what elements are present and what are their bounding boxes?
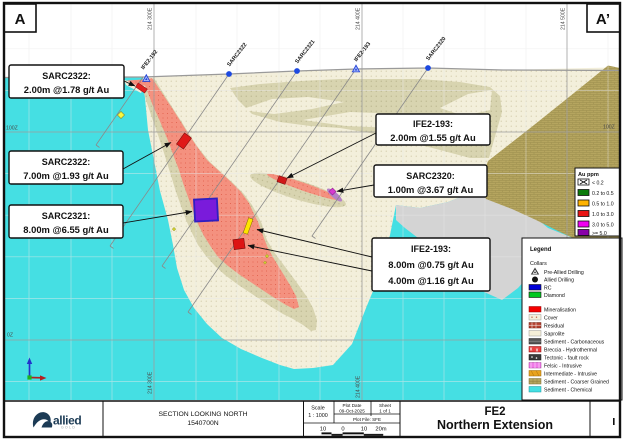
svg-text:FE2: FE2 — [484, 406, 505, 418]
svg-text:3.0 to 5.0: 3.0 to 5.0 — [592, 223, 614, 229]
svg-text:< 0.2: < 0.2 — [592, 181, 604, 187]
svg-text:RC: RC — [544, 285, 552, 291]
svg-text:7.00m @1.93 g/t Au: 7.00m @1.93 g/t Au — [23, 170, 109, 181]
svg-text:Sediment - Chemical: Sediment - Chemical — [544, 387, 592, 393]
svg-text:SECTION LOOKING NORTH: SECTION LOOKING NORTH — [159, 411, 248, 418]
svg-text:100Z: 100Z — [603, 125, 615, 131]
svg-text:SARC2320:: SARC2320: — [406, 171, 455, 181]
svg-text:1 : 1000: 1 : 1000 — [308, 413, 327, 419]
svg-text:2.00m @1.78 g/t Au: 2.00m @1.78 g/t Au — [24, 84, 110, 95]
svg-text:1 of 1: 1 of 1 — [379, 409, 391, 414]
svg-text:100Z: 100Z — [6, 126, 18, 132]
svg-text:10: 10 — [320, 427, 326, 433]
svg-text:IFE2-193:: IFE2-193: — [411, 244, 451, 254]
svg-text:Cover: Cover — [544, 315, 558, 321]
svg-text:A: A — [15, 11, 26, 28]
svg-text:GOLD: GOLD — [61, 425, 76, 429]
svg-text:Scale: Scale — [311, 406, 325, 412]
svg-text:Northern Extension: Northern Extension — [437, 418, 553, 432]
svg-text:214 400E: 214 400E — [356, 375, 362, 398]
svg-text:Au ppm: Au ppm — [578, 172, 599, 178]
svg-text:0.2 to 0.5: 0.2 to 0.5 — [592, 191, 614, 197]
svg-text:Saprolite: Saprolite — [544, 331, 565, 337]
svg-text:214 400E: 214 400E — [356, 7, 362, 30]
svg-text:Breccia - Hydrothermal: Breccia - Hydrothermal — [544, 347, 597, 353]
svg-text:4.00m @1.16 g/t Au: 4.00m @1.16 g/t Au — [388, 275, 474, 286]
svg-text:SARC2322:: SARC2322: — [42, 71, 91, 81]
svg-text:Sediment - Carbonaceous: Sediment - Carbonaceous — [544, 339, 605, 345]
svg-text:20m: 20m — [375, 427, 386, 433]
svg-text:Sediment - Coarser Grained: Sediment - Coarser Grained — [544, 379, 609, 385]
svg-text:Sheet: Sheet — [379, 403, 392, 408]
svg-text:214 500E: 214 500E — [561, 7, 567, 30]
svg-text:SARC2321:: SARC2321: — [42, 211, 91, 221]
svg-text:10: 10 — [361, 427, 367, 433]
svg-text:A’: A’ — [596, 11, 610, 28]
svg-text:Legend: Legend — [530, 247, 552, 253]
svg-text:Residual: Residual — [544, 323, 564, 329]
svg-text:Plot Date: Plot Date — [343, 403, 362, 408]
svg-text:1540700N: 1540700N — [187, 420, 218, 427]
svg-text:8.00m @0.75 g/t Au: 8.00m @0.75 g/t Au — [388, 259, 474, 270]
svg-text:Tectonic - fault rock: Tectonic - fault rock — [544, 355, 589, 361]
svg-text:Mineralisation: Mineralisation — [544, 307, 576, 313]
svg-text:Pre-Allied Drilling: Pre-Allied Drilling — [544, 270, 584, 276]
svg-text:2.00m @1.55 g/t Au: 2.00m @1.55 g/t Au — [390, 132, 476, 143]
svg-text:Intermediate - Intrusive: Intermediate - Intrusive — [544, 371, 597, 377]
svg-text:8.00m @6.55 g/t Au: 8.00m @6.55 g/t Au — [23, 224, 109, 235]
svg-text:1.0 to 3.0: 1.0 to 3.0 — [592, 212, 614, 218]
svg-text:IFE2-193:: IFE2-193: — [413, 119, 453, 129]
svg-text:Allied Drilling: Allied Drilling — [544, 278, 574, 284]
svg-text:0: 0 — [341, 427, 344, 433]
svg-text:Collars: Collars — [530, 261, 547, 267]
svg-text:>= 5.0: >= 5.0 — [592, 231, 607, 237]
svg-text:Plot File: SFE: Plot File: SFE — [353, 417, 381, 422]
svg-text:SARC2322:: SARC2322: — [42, 157, 91, 167]
svg-text:09-Oct-2025: 09-Oct-2025 — [339, 409, 365, 414]
svg-text:214 300E: 214 300E — [148, 7, 154, 30]
svg-text:1.00m @3.67 g/t Au: 1.00m @3.67 g/t Au — [388, 184, 474, 195]
svg-text:0.5 to 1.0: 0.5 to 1.0 — [592, 202, 614, 208]
svg-text:Felsic - Intrusive: Felsic - Intrusive — [544, 363, 582, 369]
svg-text:0Z: 0Z — [7, 333, 13, 339]
svg-text:214 300E: 214 300E — [148, 371, 154, 394]
svg-text:Diamond: Diamond — [544, 293, 565, 299]
